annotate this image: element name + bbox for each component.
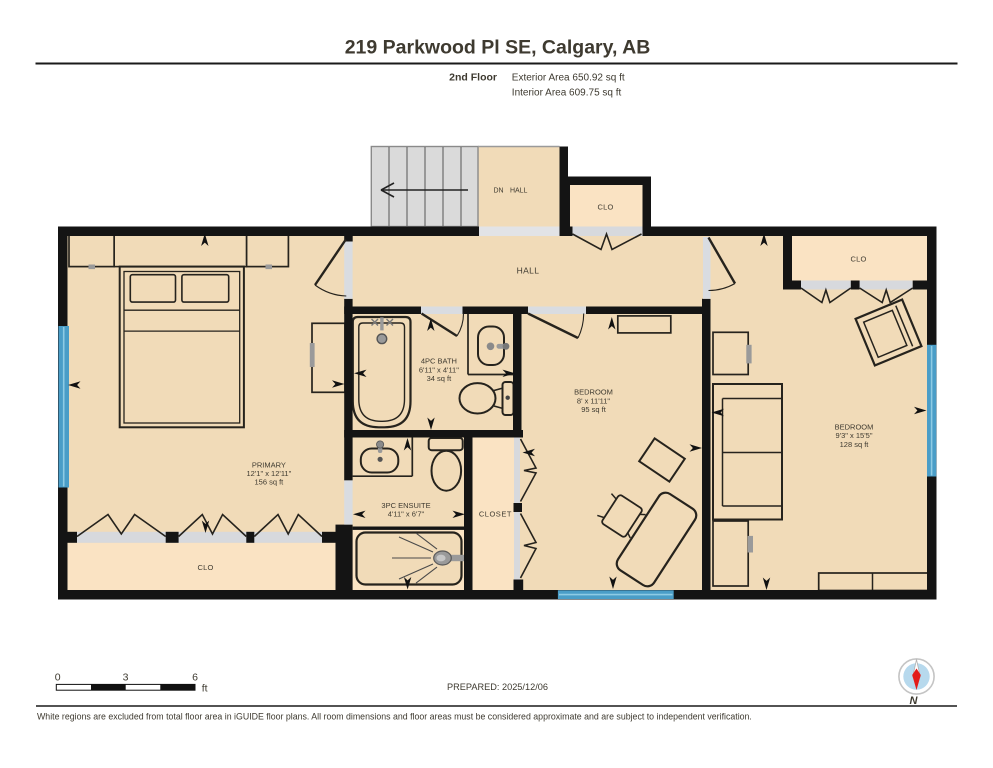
svg-text:PREPARED: 2025/12/06: PREPARED: 2025/12/06	[447, 682, 548, 692]
svg-text:CLO: CLO	[197, 563, 213, 572]
svg-text:DN: DN	[493, 188, 503, 195]
svg-text:BEDROOM: BEDROOM	[574, 388, 613, 397]
svg-text:2nd Floor: 2nd Floor	[449, 72, 497, 84]
svg-text:156 sq ft: 156 sq ft	[255, 478, 285, 487]
svg-text:4'11" x 6'7": 4'11" x 6'7"	[388, 510, 425, 519]
svg-text:BEDROOM: BEDROOM	[835, 423, 874, 432]
svg-text:CLO: CLO	[597, 203, 613, 212]
svg-text:HALL: HALL	[517, 266, 540, 276]
svg-text:Interior Area 609.75 sq ft: Interior Area 609.75 sq ft	[512, 88, 622, 99]
svg-text:8' x 11'11": 8' x 11'11"	[577, 396, 611, 405]
svg-text:HALL: HALL	[510, 188, 528, 195]
svg-text:12'1" x 12'11": 12'1" x 12'11"	[247, 469, 292, 478]
svg-text:6: 6	[192, 672, 198, 684]
svg-text:95 sq ft: 95 sq ft	[581, 405, 607, 414]
svg-text:ft: ft	[202, 683, 208, 695]
svg-text:PRIMARY: PRIMARY	[252, 460, 286, 469]
svg-text:219 Parkwood Pl SE, Calgary, A: 219 Parkwood Pl SE, Calgary, AB	[345, 37, 651, 59]
svg-text:Exterior Area 650.92 sq ft: Exterior Area 650.92 sq ft	[512, 73, 625, 84]
svg-text:CLOSET: CLOSET	[479, 510, 512, 519]
svg-text:0: 0	[55, 672, 61, 684]
svg-text:3PC ENSUITE: 3PC ENSUITE	[381, 501, 430, 510]
svg-text:9'3" x 15'5": 9'3" x 15'5"	[836, 431, 873, 440]
svg-text:6'11" x 4'11": 6'11" x 4'11"	[419, 365, 459, 374]
svg-text:4PC BATH: 4PC BATH	[421, 357, 457, 366]
svg-text:34 sq ft: 34 sq ft	[427, 374, 453, 383]
svg-text:White regions are excluded fro: White regions are excluded from total fl…	[37, 712, 752, 722]
svg-text:CLO: CLO	[850, 255, 866, 264]
svg-text:128 sq ft: 128 sq ft	[840, 440, 870, 449]
svg-text:3: 3	[123, 672, 129, 684]
